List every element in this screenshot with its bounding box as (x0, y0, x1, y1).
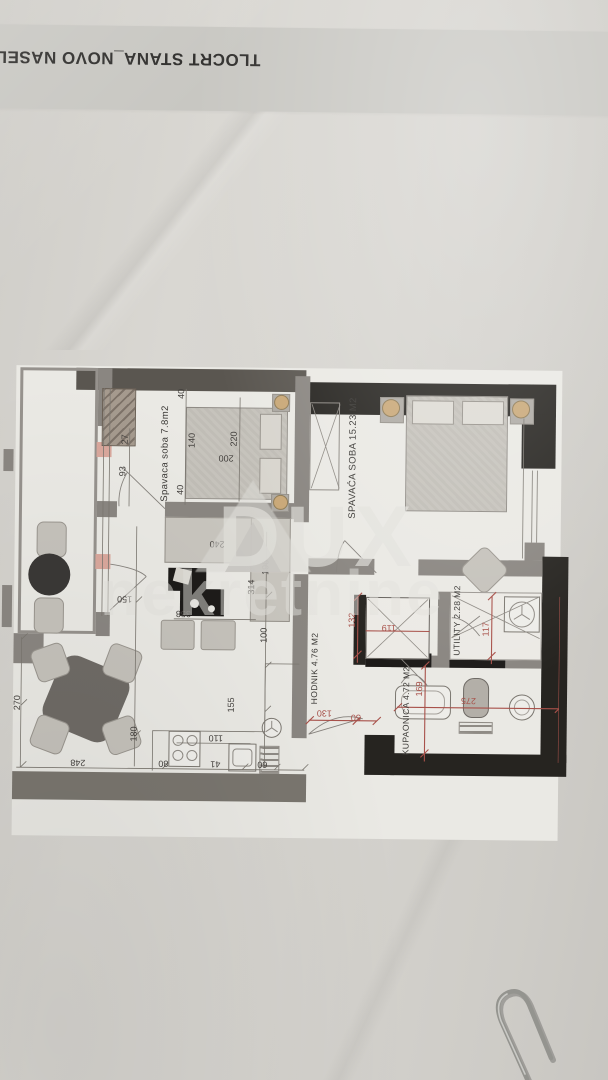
dim-248: 248 (70, 758, 85, 767)
room-label-bathroom: KUPAONICA 4.72 M2 (400, 669, 411, 755)
dim-40-top: 40 (177, 389, 186, 399)
dim-110: 110 (209, 733, 223, 742)
dim-27: 27 (121, 434, 130, 444)
dim-41: 41 (210, 759, 220, 768)
dim-80: 80 (158, 759, 168, 768)
paper-wrinkle (0, 90, 380, 350)
dim-40-bottom: 40 (176, 485, 185, 495)
neighbour-wall (2, 585, 12, 627)
dim-220: 220 (230, 431, 239, 446)
dim-155: 155 (227, 697, 236, 712)
dim-red-169: 169 (415, 681, 424, 696)
dim-358: 358 (176, 609, 191, 618)
dim-200: 200 (218, 453, 233, 462)
dim-196: 196 (261, 560, 270, 575)
dim-60: 60 (257, 760, 267, 769)
photo-of-floor-plan: TLOCRT STANA_NOVO NASEL (0, 0, 608, 1080)
dim-red-117: 117 (482, 622, 491, 636)
room-label-utility: UTILITY 2.28 M2 (451, 594, 462, 656)
neighbour-wall (3, 449, 13, 471)
floorplan: Spavaca soba 7.8m2 SPAVAĆA SOBA 15.23 M2… (12, 365, 563, 841)
room-label-bedroom2: SPAVAĆA SOBA 15.23 M2 (347, 419, 359, 519)
plan-title: TLOCRT STANA_NOVO NASEL (0, 46, 261, 69)
paperclip (478, 982, 598, 1080)
room-label-hallway: HODNIK 4.76 M2 (309, 624, 320, 704)
dim-100: 100 (260, 628, 269, 643)
dim-150: 150 (117, 594, 132, 603)
dim-240: 240 (210, 539, 225, 548)
plan-linework (12, 365, 563, 841)
room-label-bedroom1: Spavaca soba 7.8m2 (159, 412, 171, 502)
dim-red-275: 275 (461, 696, 476, 705)
dim-270: 270 (13, 695, 22, 710)
dim-red-119: 119 (382, 623, 396, 632)
dim-180: 180 (130, 726, 139, 741)
dim-314: 314 (247, 580, 256, 595)
dim-red-130: 130 (317, 708, 332, 717)
scan-band: TLOCRT STANA_NOVO NASEL (0, 24, 608, 116)
dim-140: 140 (188, 433, 197, 448)
dim-red-132: 132 (348, 613, 357, 628)
dim-red-50: 50 (351, 713, 361, 722)
dim-93: 93 (118, 466, 127, 476)
